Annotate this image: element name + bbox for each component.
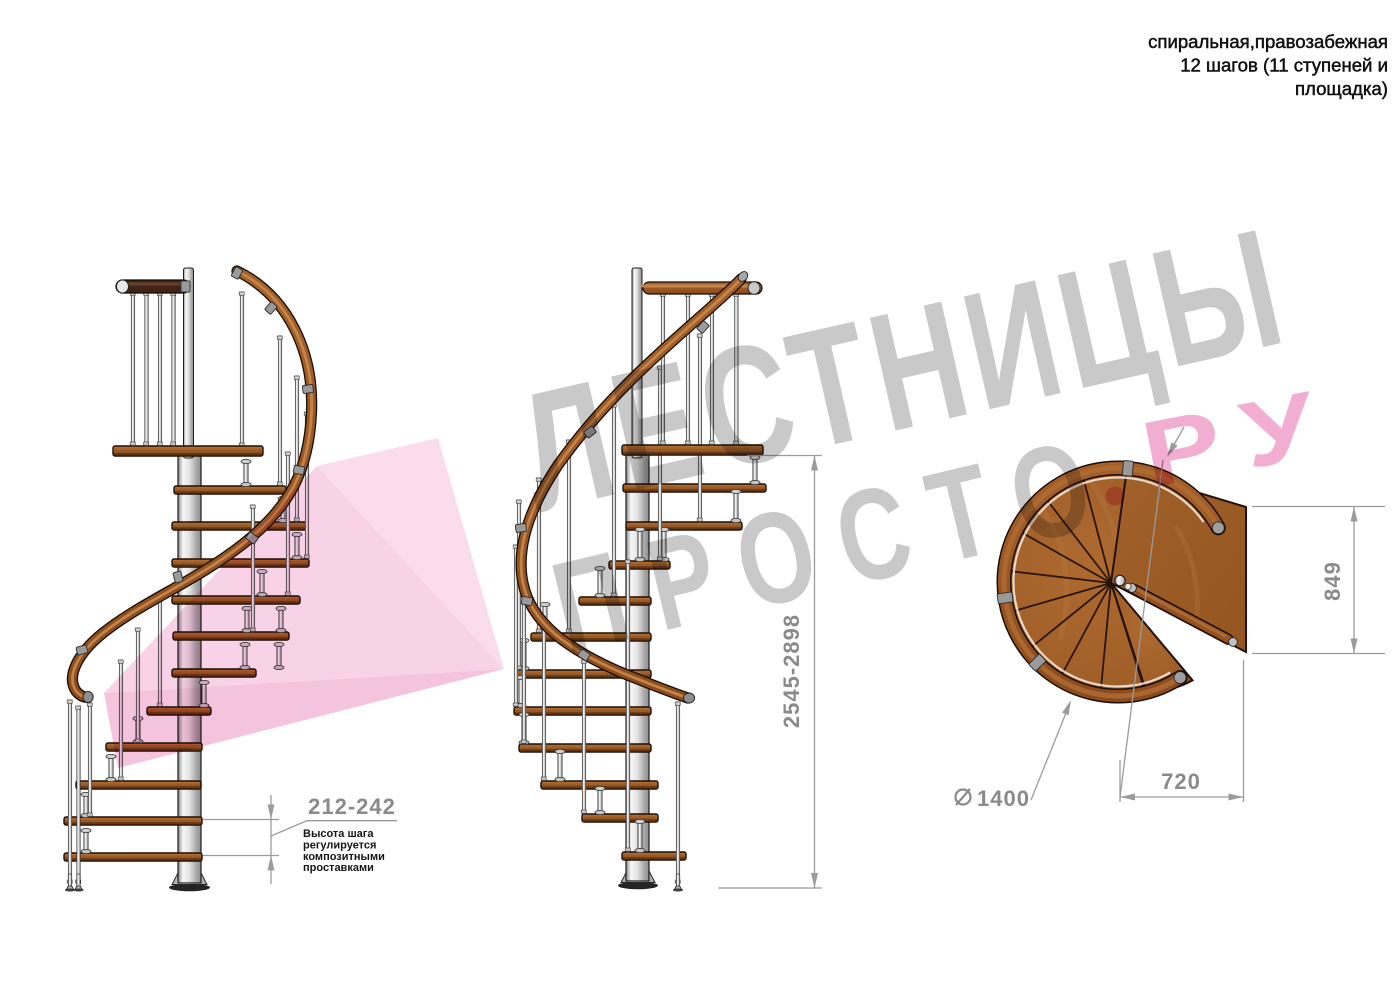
svg-text:720: 720: [1161, 769, 1201, 794]
svg-text:спиральная,правозабежная12 шаг: спиральная,правозабежная12 шагов (11 сту…: [1148, 31, 1388, 99]
svg-text:Высота шагарегулируетсякомпози: Высота шагарегулируетсякомпозитнымипрост…: [303, 828, 385, 874]
svg-text:212-242: 212-242: [308, 794, 396, 819]
svg-text:1400: 1400: [977, 786, 1030, 811]
svg-text:849: 849: [1320, 561, 1345, 601]
